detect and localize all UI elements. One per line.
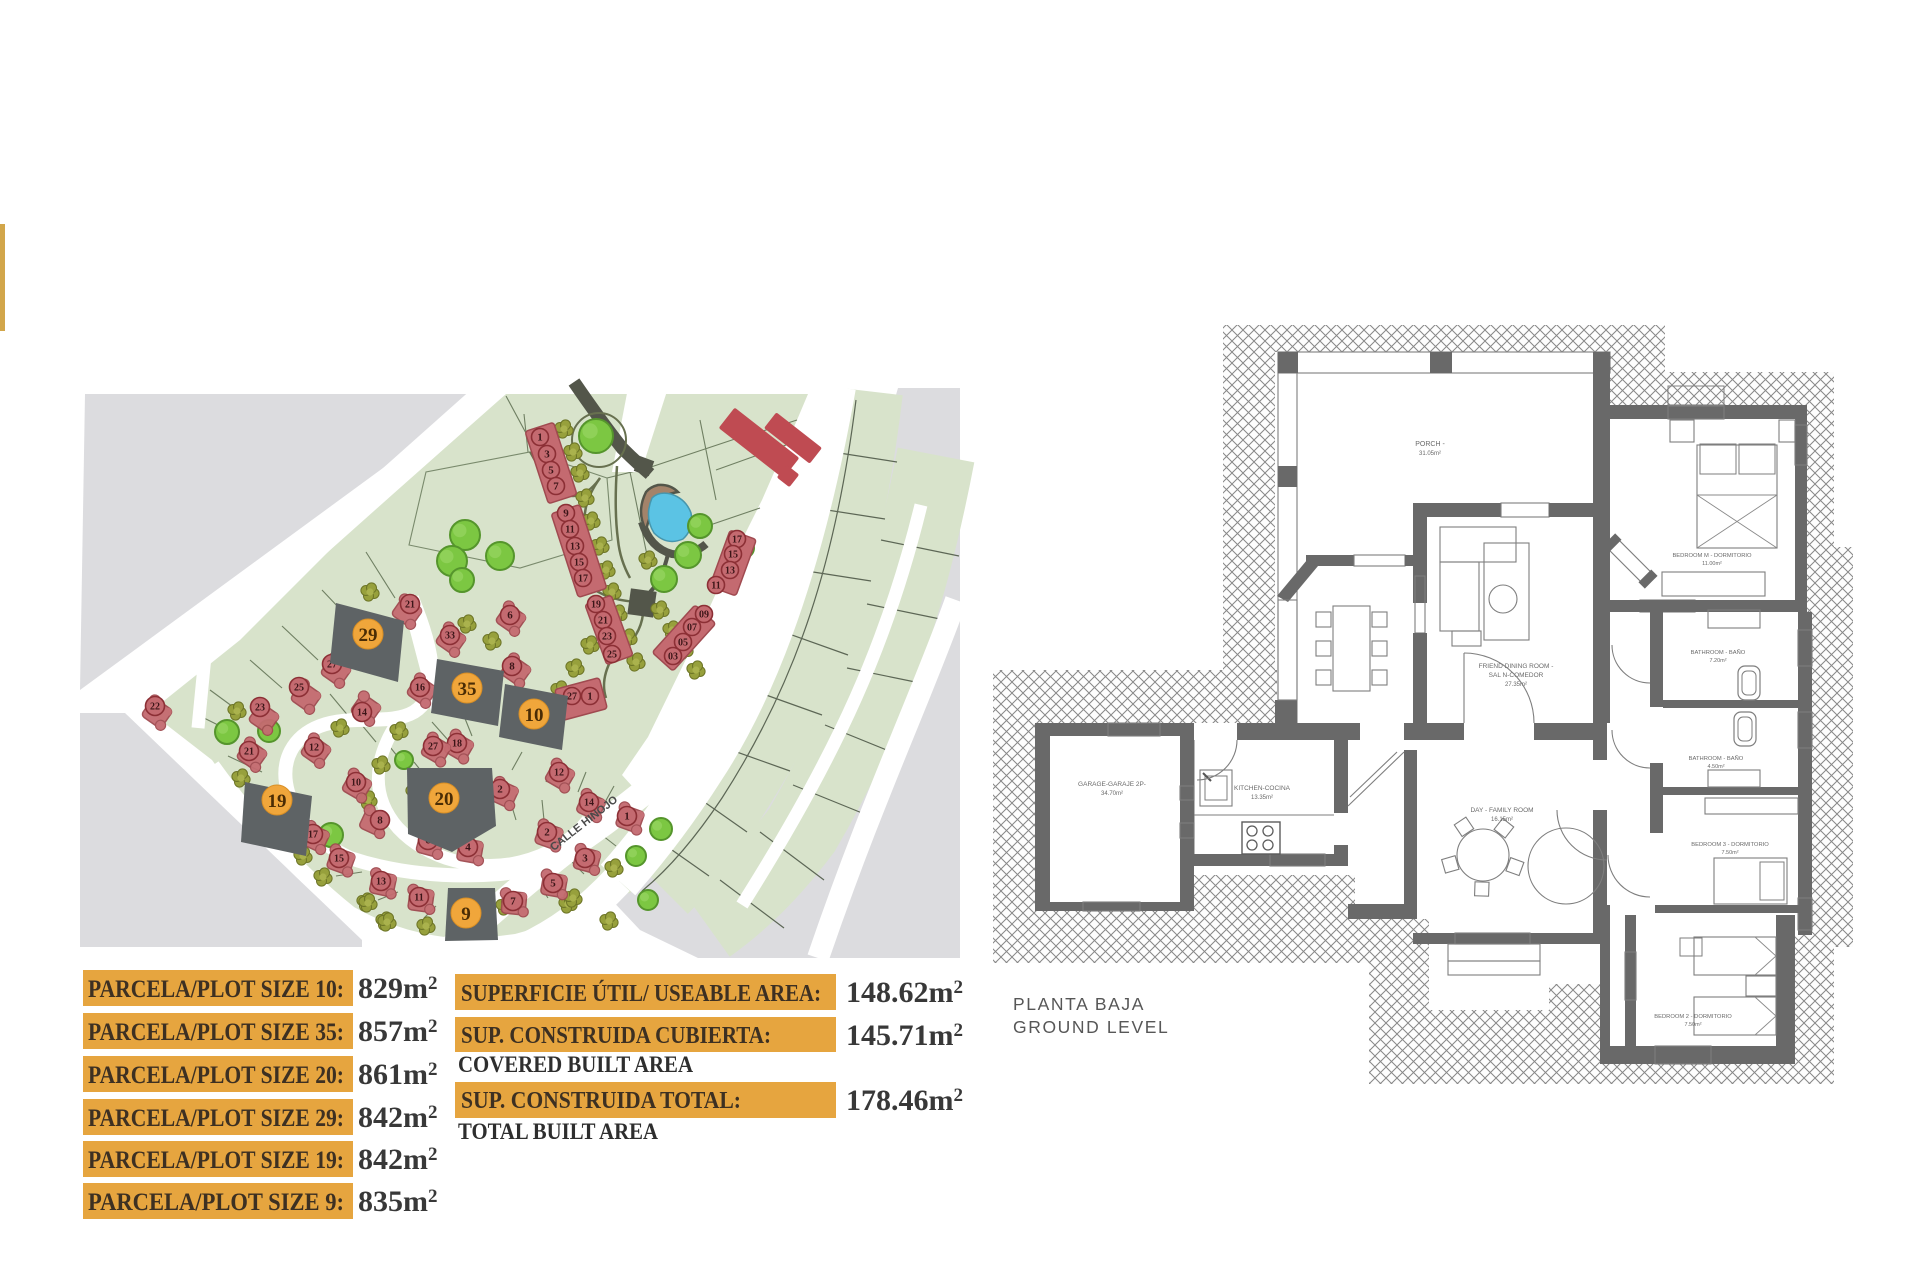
- svg-text:TOTAL BUILT AREA: TOTAL BUILT AREA: [458, 1119, 658, 1144]
- svg-text:15: 15: [334, 854, 344, 865]
- svg-text:148.62m2: 148.62m2: [846, 976, 963, 1009]
- svg-text:842m2: 842m2: [358, 1143, 438, 1176]
- svg-text:27: 27: [428, 742, 438, 753]
- svg-text:17: 17: [308, 830, 318, 841]
- svg-text:21: 21: [405, 600, 415, 611]
- svg-text:19: 19: [268, 791, 287, 812]
- svg-text:22: 22: [150, 702, 160, 713]
- svg-text:23: 23: [255, 703, 265, 714]
- svg-text:3: 3: [544, 449, 550, 461]
- svg-text:34.70m²: 34.70m²: [1101, 791, 1123, 797]
- svg-text:GROUND LEVEL: GROUND LEVEL: [1013, 1017, 1169, 1037]
- svg-text:PARCELA/PLOT SIZE 10:: PARCELA/PLOT SIZE 10:: [88, 976, 344, 1003]
- svg-text:9: 9: [461, 904, 471, 925]
- svg-text:BATHROOM - BAÑO: BATHROOM - BAÑO: [1689, 755, 1744, 762]
- svg-text:15: 15: [574, 558, 584, 569]
- svg-text:SUP. CONSTRUIDA TOTAL:: SUP. CONSTRUIDA TOTAL:: [461, 1088, 741, 1114]
- svg-text:178.46m2: 178.46m2: [846, 1084, 963, 1117]
- svg-text:PARCELA/PLOT SIZE 19:: PARCELA/PLOT SIZE 19:: [88, 1147, 344, 1174]
- svg-text:FRIEND DINING ROOM -: FRIEND DINING ROOM -: [1479, 663, 1554, 670]
- svg-text:11: 11: [565, 525, 574, 536]
- svg-text:16: 16: [415, 683, 425, 694]
- svg-text:7: 7: [510, 896, 516, 908]
- svg-text:29: 29: [359, 625, 378, 646]
- svg-text:5: 5: [550, 878, 556, 890]
- svg-text:9: 9: [563, 508, 569, 520]
- svg-text:BEDROOM 3 - DORMITORIO: BEDROOM 3 - DORMITORIO: [1691, 842, 1769, 848]
- svg-text:7.50m²: 7.50m²: [1684, 1022, 1701, 1028]
- svg-text:857m2: 857m2: [358, 1015, 438, 1048]
- svg-text:GARAGE-GARAJE 2P-: GARAGE-GARAJE 2P-: [1078, 781, 1146, 788]
- svg-text:11: 11: [711, 581, 720, 592]
- svg-text:11.00m²: 11.00m²: [1702, 561, 1722, 567]
- svg-text:13.35m²: 13.35m²: [1251, 795, 1273, 801]
- svg-text:PARCELA/PLOT SIZE 29:: PARCELA/PLOT SIZE 29:: [88, 1105, 344, 1132]
- svg-text:14: 14: [584, 798, 594, 809]
- svg-text:SUPERFICIE ÚTIL/ USEABLE AREA:: SUPERFICIE ÚTIL/ USEABLE AREA:: [461, 981, 821, 1007]
- svg-text:11: 11: [414, 893, 423, 904]
- svg-text:6: 6: [507, 610, 513, 622]
- svg-text:BEDROOM 2 - DORMITORIO: BEDROOM 2 - DORMITORIO: [1654, 1014, 1732, 1020]
- svg-text:KITCHEN-COCINA: KITCHEN-COCINA: [1234, 785, 1291, 792]
- svg-text:16.15m²: 16.15m²: [1491, 817, 1513, 823]
- svg-text:10: 10: [351, 778, 361, 789]
- svg-text:PARCELA/PLOT SIZE 35:: PARCELA/PLOT SIZE 35:: [88, 1019, 344, 1046]
- svg-text:21: 21: [244, 747, 254, 758]
- svg-text:DAY - FAMILY ROOM: DAY - FAMILY ROOM: [1470, 807, 1533, 814]
- svg-text:BATHROOM - BAÑO: BATHROOM - BAÑO: [1691, 649, 1746, 656]
- svg-text:25: 25: [294, 683, 304, 694]
- svg-text:17: 17: [732, 535, 742, 546]
- svg-text:BEDROOM M - DORMITORIO: BEDROOM M - DORMITORIO: [1672, 553, 1752, 559]
- svg-text:COVERED BUILT AREA: COVERED BUILT AREA: [458, 1052, 693, 1077]
- svg-text:8: 8: [377, 815, 383, 827]
- svg-text:13: 13: [376, 877, 386, 888]
- svg-text:20: 20: [435, 789, 454, 810]
- svg-text:8: 8: [509, 661, 515, 673]
- svg-text:18: 18: [452, 739, 462, 750]
- svg-text:835m2: 835m2: [358, 1185, 438, 1218]
- svg-text:19: 19: [591, 600, 601, 611]
- svg-text:1: 1: [587, 691, 593, 703]
- svg-text:27: 27: [567, 692, 577, 703]
- svg-text:05: 05: [678, 638, 688, 649]
- svg-text:14: 14: [357, 708, 367, 719]
- svg-text:4.50m²: 4.50m²: [1707, 764, 1724, 770]
- svg-text:PARCELA/PLOT SIZE 20:: PARCELA/PLOT SIZE 20:: [88, 1062, 344, 1089]
- svg-text:17: 17: [578, 574, 588, 585]
- svg-text:861m2: 861m2: [358, 1058, 438, 1091]
- svg-text:7: 7: [553, 481, 559, 493]
- svg-text:829m2: 829m2: [358, 972, 438, 1005]
- svg-text:2: 2: [497, 784, 503, 796]
- svg-text:7.20m²: 7.20m²: [1709, 658, 1726, 664]
- svg-text:10: 10: [525, 705, 544, 726]
- svg-text:15: 15: [728, 550, 738, 561]
- svg-text:33: 33: [445, 631, 455, 642]
- svg-text:12: 12: [309, 743, 319, 754]
- svg-text:13: 13: [725, 566, 735, 577]
- svg-text:SUP. CONSTRUIDA CUBIERTA:: SUP. CONSTRUIDA CUBIERTA:: [461, 1023, 771, 1049]
- svg-text:09: 09: [699, 610, 709, 621]
- svg-text:31.05m²: 31.05m²: [1419, 451, 1441, 457]
- svg-text:35: 35: [458, 679, 477, 700]
- svg-text:7.50m²: 7.50m²: [1721, 850, 1738, 856]
- svg-text:842m2: 842m2: [358, 1101, 438, 1134]
- svg-text:PORCH -: PORCH -: [1415, 441, 1445, 448]
- svg-text:23: 23: [602, 632, 612, 643]
- svg-text:2: 2: [544, 827, 550, 839]
- svg-text:1: 1: [624, 811, 630, 823]
- svg-text:12: 12: [554, 768, 564, 779]
- svg-text:PLANTA BAJA: PLANTA BAJA: [1013, 994, 1145, 1014]
- svg-text:07: 07: [687, 623, 697, 634]
- svg-text:1: 1: [537, 432, 543, 444]
- svg-text:145.71m2: 145.71m2: [846, 1019, 963, 1052]
- svg-text:03: 03: [668, 652, 678, 663]
- svg-text:21: 21: [598, 616, 608, 627]
- svg-text:PARCELA/PLOT SIZE 9:: PARCELA/PLOT SIZE 9:: [88, 1189, 344, 1216]
- svg-text:3: 3: [582, 853, 588, 865]
- svg-text:13: 13: [570, 542, 580, 553]
- svg-text:5: 5: [548, 465, 554, 477]
- svg-text:25: 25: [607, 650, 617, 661]
